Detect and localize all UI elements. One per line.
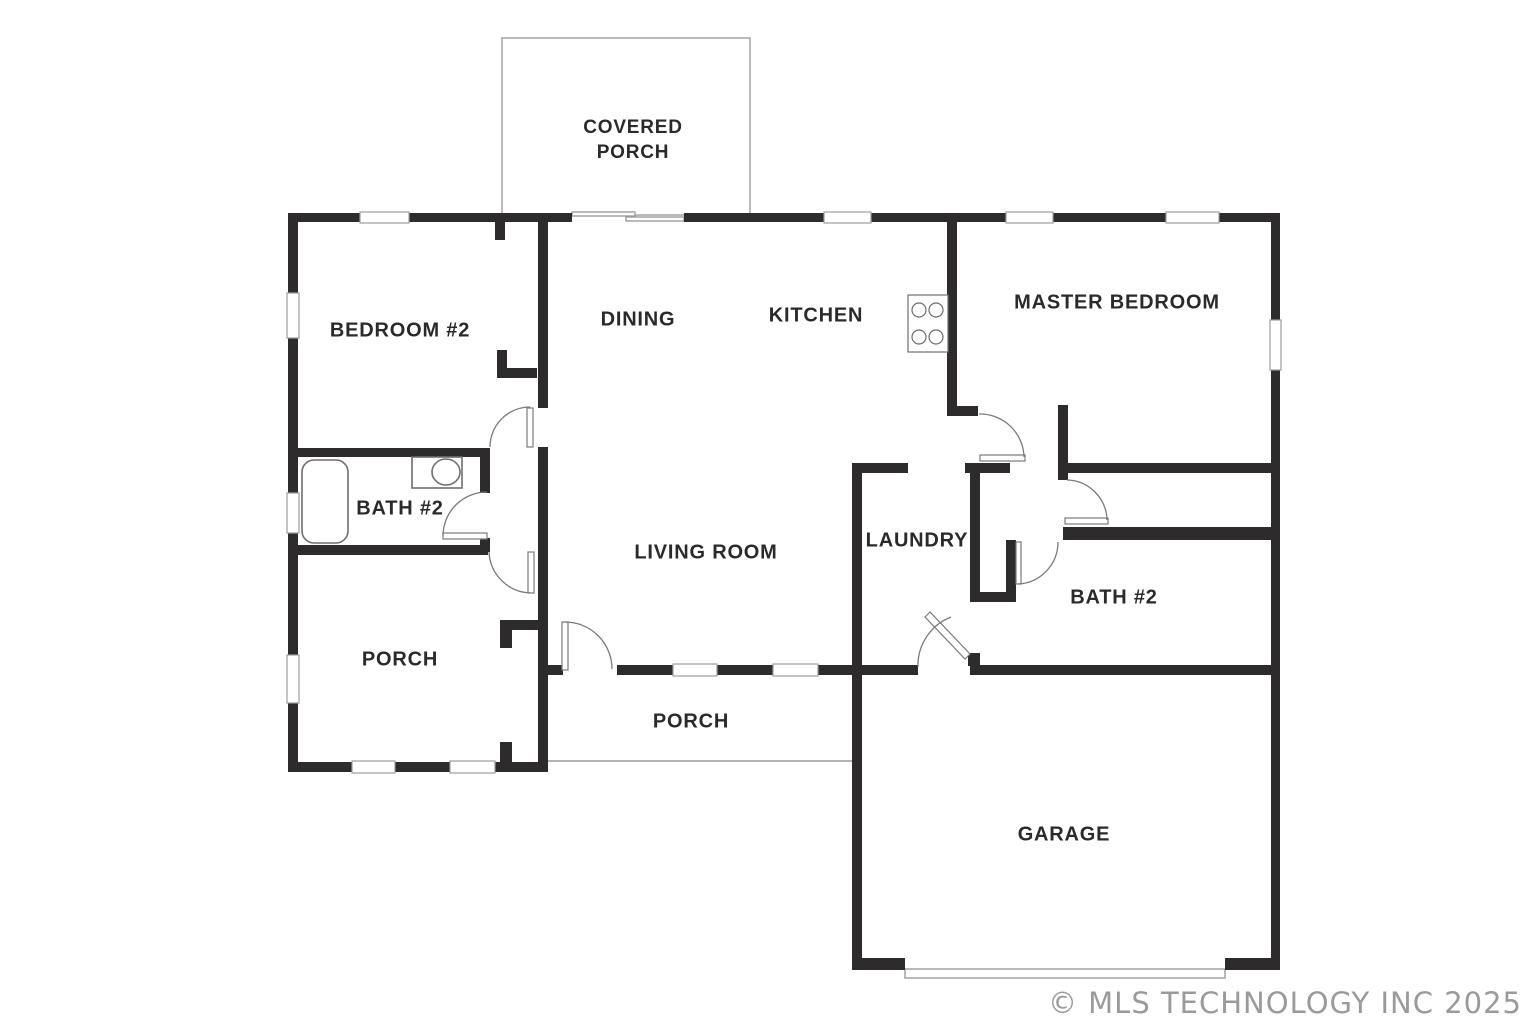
porch-left-door (489, 552, 534, 593)
bath2-right-door (1016, 542, 1058, 584)
window (773, 664, 818, 676)
window (824, 212, 871, 223)
bathtub (302, 460, 348, 543)
hallway-door (979, 414, 1025, 461)
window (1166, 212, 1219, 223)
room-label-master-bedroom: MASTER BEDROOM (1014, 292, 1220, 315)
garage-entry-door (918, 612, 970, 667)
stove (908, 295, 948, 352)
bath2-left-door (443, 492, 487, 539)
window (450, 761, 495, 773)
watermark: © MLS TECHNOLOGY INC 2025 (1048, 986, 1522, 1020)
window (352, 761, 395, 773)
floor-plan-drawing (0, 0, 1536, 1024)
room-label-living-room: LIVING ROOM (634, 542, 777, 565)
room-label-porch-front: PORCH (653, 711, 729, 734)
room-label-dining: DINING (601, 309, 676, 332)
room-label-garage: GARAGE (1018, 824, 1111, 847)
window (287, 493, 299, 533)
garage-door (905, 969, 1225, 978)
room-label-bedroom2: BEDROOM #2 (330, 320, 470, 343)
room-label-bath2-right: BATH #2 (1070, 587, 1157, 610)
bedroom2-door (490, 407, 533, 447)
room-label-covered-porch: COVERED PORCH (583, 115, 683, 165)
window (673, 664, 717, 676)
floor-plan: COVERED PORCH BEDROOM #2 DINING KITCHEN … (0, 0, 1536, 1024)
window (287, 293, 299, 338)
room-label-laundry: LAUNDRY (866, 530, 969, 553)
window (1006, 212, 1053, 223)
window (287, 655, 299, 703)
room-label-kitchen: KITCHEN (769, 305, 864, 328)
master-bedroom-door (1065, 480, 1108, 524)
bathroom-sink (412, 457, 462, 488)
window (360, 212, 409, 223)
room-label-porch-left: PORCH (362, 649, 438, 672)
room-label-bath2-left: BATH #2 (356, 498, 443, 521)
window (1270, 320, 1281, 370)
front-door (562, 622, 612, 670)
